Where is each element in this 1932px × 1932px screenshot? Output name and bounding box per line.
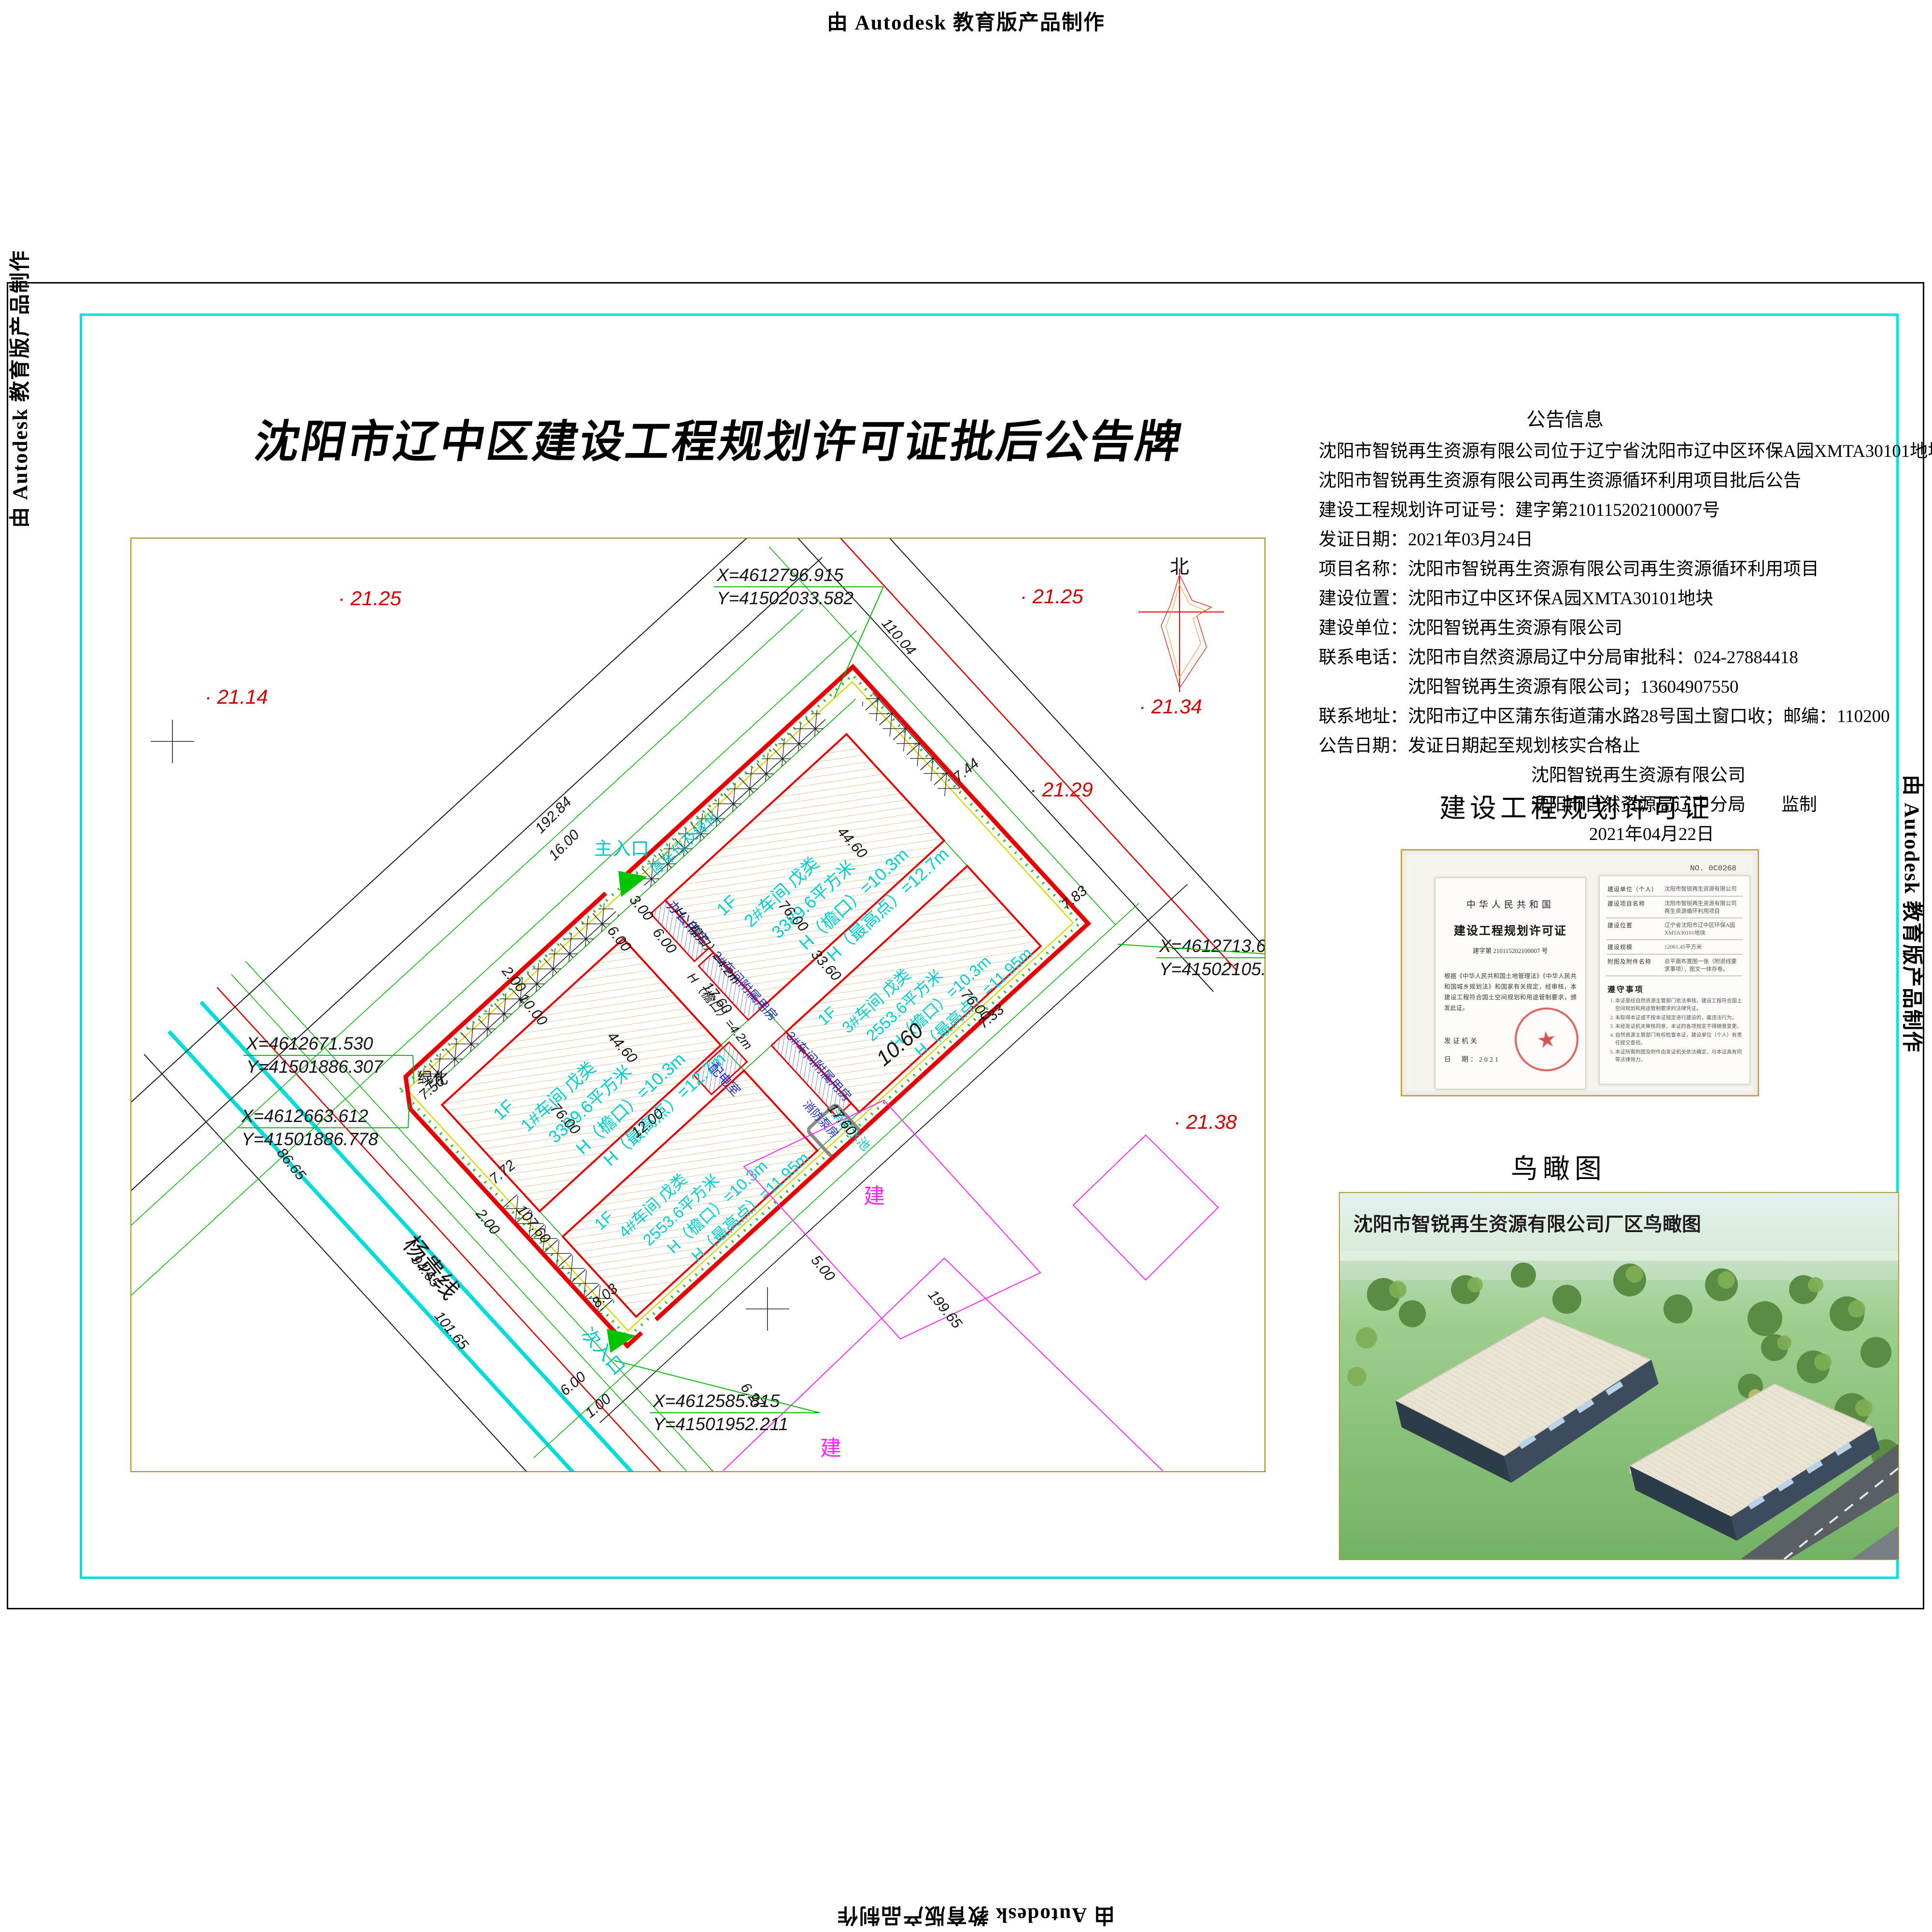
svg-text:· 21.14: · 21.14 (205, 685, 268, 708)
rotated-site-group: 1F1#车间 戊类3389.6平方米H（檐口）=10.3mH（最高点）=12.7… (131, 539, 1264, 1471)
certificate-title: 建设工程规划许可证 (1444, 921, 1577, 938)
aerial-svg: 沈阳市智锐再生资源有限公司厂区鸟瞰图 (1340, 1193, 1898, 1559)
svg-text:X=4612671.530: X=4612671.530 (246, 1034, 373, 1053)
site-plan-svg: 1F1#车间 戊类3389.6平方米H（檐口）=10.3mH（最高点）=12.7… (131, 539, 1264, 1471)
notice-line: 沈阳市智锐再生资源有限公司再生资源循环利用项目批后公告 (1319, 466, 1898, 496)
svg-text:· 21.29: · 21.29 (1030, 778, 1093, 801)
svg-text:· 21.34: · 21.34 (1139, 695, 1202, 718)
permit-section-heading: 建设工程规划许可证 (1439, 786, 1713, 825)
cert-field-row: 建设项目名称 沈阳市智锐再生资源有限公司再生资源循环利用项目 (1606, 896, 1743, 918)
svg-text:· 21.25: · 21.25 (338, 587, 401, 610)
svg-text:110.04: 110.04 (879, 615, 919, 658)
svg-text:2.00: 2.00 (472, 1206, 503, 1238)
autodesk-stamp-top: 由 Autodesk 教育版产品制作 (827, 6, 1105, 36)
notice-line: 项目名称：沈阳市智锐再生资源有限公司再生资源循环利用项目 (1319, 554, 1898, 584)
aerial-section-heading: 鸟瞰图 (1511, 1147, 1606, 1186)
notice-line: 沈阳智锐再生资源有限公司 (1319, 761, 1898, 790)
svg-text:16.00: 16.00 (546, 826, 583, 864)
certificate-number: NO. 0C0268 (1690, 864, 1736, 873)
notice-line: 公告日期：发证日期起至规划核实合格止 (1319, 731, 1898, 761)
notice-line: 沈阳市智锐再生资源有限公司位于辽宁省沈阳市辽中区环保A园XMTA30101地块， (1319, 437, 1898, 466)
field-value: 总平面布置图一张（附退线要求事项），图文一体存卷。 (1664, 957, 1742, 973)
notes-title: 遵守事项 (1607, 983, 1743, 994)
notice-line: 联系地址：沈阳市辽中区蒲东街道蒲水路28号国土窗口收；邮编：110200 (1319, 702, 1898, 731)
field-label: 附图及附件名称 (1607, 957, 1664, 973)
notice-line: 建设单位：沈阳智锐再生资源有限公司 (1319, 613, 1898, 643)
note-item: 自然资源主管部门有权检查本证，建设单位（个人）有责任提交查验。 (1615, 1032, 1743, 1048)
svg-text:X=4612663.612: X=4612663.612 (241, 1106, 369, 1126)
certificate-scan: NO. 0C0268 中华人民共和国 建设工程规划许可证 建字第 2101152… (1407, 854, 1753, 1091)
svg-text:101.65: 101.65 (431, 1308, 472, 1353)
svg-text:主入口: 主入口 (594, 839, 649, 859)
page-title: 沈阳市辽中区建设工程规划许可证批后公告牌 (187, 406, 1251, 470)
svg-text:Y=41502033.582: Y=41502033.582 (717, 588, 853, 608)
note-item: 未取得本证或不按本证规定进行建设的，属违法行为。 (1615, 1014, 1743, 1022)
note-item: 本证所需附图及附件由发证机关依法确定，与本证具有同等法律效力。 (1615, 1049, 1743, 1065)
notice-line: 建设位置：沈阳市辽中区环保A园XMTA30101地块 (1319, 584, 1898, 613)
field-label: 建设项目名称 (1607, 899, 1664, 915)
north-arrow (1138, 568, 1224, 692)
seal-star-icon: ★ (1535, 1025, 1558, 1053)
aerial-caption: 沈阳市智锐再生资源有限公司厂区鸟瞰图 (1353, 1214, 1701, 1235)
aerial-rendering: 沈阳市智锐再生资源有限公司厂区鸟瞰图 (1339, 1192, 1899, 1560)
svg-text:绿化: 绿化 (417, 1069, 448, 1087)
svg-text:· 21.38: · 21.38 (1174, 1110, 1237, 1133)
notice-line: 发证日期：2021年03月24日 (1319, 525, 1898, 554)
cert-field-row: 附图及附件名称 总平面布置图一张（附退线要求事项），图文一体存卷。 (1606, 954, 1743, 976)
notice-board-page: 由 Autodesk 教育版产品制作 由 Autodesk 教育版产品制作 由 … (0, 0, 1932, 1932)
field-value: 12061.45平方米 (1664, 943, 1702, 951)
field-label: 建设单位（个人） (1607, 885, 1664, 893)
road-lines (131, 539, 1264, 1471)
autodesk-stamp-bottom: 由 Autodesk 教育版产品制作 (837, 1902, 1115, 1932)
svg-text:3.00: 3.00 (626, 892, 657, 924)
cert-field-row: 建设规模 12061.45平方米 (1606, 940, 1743, 954)
notice-line: 沈阳智锐再生资源有限公司；13604907550 (1319, 672, 1898, 702)
note-item: 未经发证机关审核同意，本证的各项规定不得随意变更。 (1615, 1023, 1743, 1031)
note-item: 本证是经自然资源主管部门依法审核，建设工程符合国土空间规划和用途管制要求的法律凭… (1615, 997, 1743, 1013)
svg-text:1.00: 1.00 (582, 1391, 614, 1421)
cert-field-row: 建设位置 辽宁省沈阳市辽中区环保A园XMTA30101地块 (1606, 918, 1743, 940)
svg-text:Y=41501886.307: Y=41501886.307 (246, 1057, 384, 1077)
field-value: 辽宁省沈阳市辽中区环保A园XMTA30101地块 (1664, 921, 1742, 937)
official-seal: ★ (1510, 1003, 1582, 1075)
notes-list: 本证是经自然资源主管部门依法审核，建设工程符合国土空间规划和用途管制要求的法律凭… (1606, 997, 1743, 1064)
field-value: 沈阳市智锐再生资源有限公司 (1664, 885, 1737, 893)
field-label: 建设规模 (1607, 943, 1664, 951)
notice-heading: 公告信息 (1319, 404, 1898, 432)
notice-line: 联系电话：沈阳市自然资源局辽中分局审批科：024-27884418 (1319, 643, 1898, 672)
svg-text:5.00: 5.00 (808, 1252, 838, 1284)
certificate-serial: 建字第 210115202100007 号 (1444, 946, 1577, 955)
certificate-country: 中华人民共和国 (1444, 897, 1577, 910)
svg-text:建: 建 (864, 1184, 885, 1208)
notice-info-panel: 公告信息 沈阳市智锐再生资源有限公司位于辽宁省沈阳市辽中区环保A园XMTA301… (1319, 404, 1898, 849)
permit-certificate-photo: NO. 0C0268 中华人民共和国 建设工程规划许可证 建字第 2101152… (1401, 849, 1759, 1096)
svg-text:X=4612796.915: X=4612796.915 (716, 565, 844, 585)
svg-text:Y=41502105.550: Y=41502105.550 (1159, 959, 1264, 979)
certificate-right-page: 建设单位（个人） 沈阳市智锐再生资源有限公司 建设项目名称 沈阳市智锐再生资源有… (1599, 876, 1750, 1084)
svg-text:建: 建 (820, 1436, 841, 1460)
certificate-left-page: 中华人民共和国 建设工程规划许可证 建字第 210115202100007 号 … (1435, 878, 1586, 1089)
field-value: 沈阳市智锐再生资源有限公司再生资源循环利用项目 (1664, 899, 1742, 915)
cert-field-row: 建设单位（个人） 沈阳市智锐再生资源有限公司 (1606, 882, 1743, 896)
field-label: 建设位置 (1607, 921, 1664, 937)
notice-line: 建设工程规划许可证号：建字第210115202100007号 (1319, 496, 1898, 525)
svg-text:Y=41501952.211: Y=41501952.211 (653, 1414, 788, 1434)
svg-text:Y=41501886.778: Y=41501886.778 (241, 1129, 378, 1149)
site-plan-drawing: 1F1#车间 戊类3389.6平方米H（檐口）=10.3mH（最高点）=12.7… (130, 538, 1265, 1472)
certificate-body-text: 根据《中华人民共和国土地管理法》《中华人民共和国城乡规划法》和国家有关规定，经审… (1444, 971, 1577, 1014)
svg-text:· 21.25: · 21.25 (1020, 585, 1083, 608)
svg-text:北: 北 (1170, 556, 1189, 578)
